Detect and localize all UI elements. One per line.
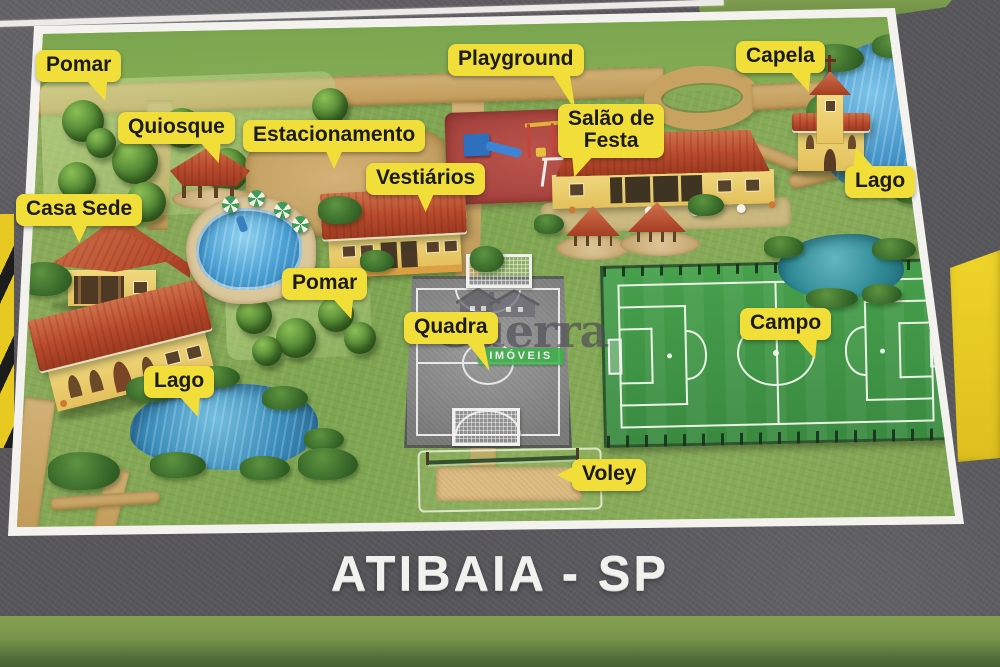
main-house-roof-fill [48,228,182,272]
lakeside-bush [934,128,976,164]
label-playground: Playground [448,44,584,76]
label-text: Quiosque [128,116,225,138]
label-text: Capela [746,45,815,67]
porch-post [78,276,81,304]
cross-icon [828,55,831,72]
label-text: Quadra [414,316,488,338]
lakeside-bush [304,428,344,450]
arched-window [87,369,104,393]
left-curb-striped [0,214,14,448]
window [343,246,356,257]
site-map-scene: Guerra IMÓVEIS Pomar Quiosque Estacionam… [0,0,1000,667]
court-goal-bottom [452,408,520,446]
lakeside-bush [150,452,206,478]
gazebo-small [628,202,686,246]
veranda-post [622,177,626,203]
window [165,351,180,365]
window [445,241,458,252]
label-text: Playground [458,48,574,70]
orchard-tree [252,336,282,366]
cross-icon [823,59,836,62]
label-text-line1: Salão de [568,108,654,130]
gazebo-roof [566,206,620,236]
bush [688,194,724,216]
bottom-grass-strip [0,616,1000,667]
label-estacionamento: Estacionamento [243,120,425,152]
label-salao-de-festa: Salão deFesta [558,104,664,158]
lakeside-bush [922,60,966,86]
label-text: Campo [750,312,821,334]
quiosque-gazebo [170,146,250,202]
play-post [527,124,531,158]
label-vestiarios: Vestiários [366,163,485,195]
lakeside-bush [262,386,308,410]
label-text-line2: Festa [568,130,654,152]
label-pomar-top: Pomar [36,50,121,82]
goal-box-right [898,321,933,378]
pond-bush [806,288,858,308]
label-text: Voley [582,463,636,485]
chapel-window [848,135,856,149]
veranda-post [678,176,682,202]
pool-umbrella [222,196,239,213]
window [186,346,201,360]
label-text: Lago [855,170,905,192]
bush [48,452,120,490]
bush [360,250,394,272]
arched-window [66,374,83,398]
page-title: ATIBAIA - SP [0,546,1000,602]
label-capela: Capela [736,41,825,73]
window [718,180,731,191]
label-text: Vestiários [376,167,475,189]
label-lago-top-right: Lago [845,166,915,198]
label-lago-bottom-left: Lago [144,366,214,398]
orchard-tree [86,128,116,158]
soccer-field [600,258,952,448]
label-text: Estacionamento [253,124,415,146]
label-voley: Voley [572,459,646,491]
bush [534,214,564,234]
pool-umbrella [248,190,265,207]
pond-bush [764,236,804,258]
bush [318,196,362,224]
goal-box-left [618,328,653,385]
label-pomar-mid: Pomar [282,268,367,300]
chapel-tower-roof [809,71,851,95]
volleyball-sand [436,467,582,501]
pond-bush [872,238,916,260]
window [570,184,583,195]
label-quiosque: Quiosque [118,112,235,144]
right-curb-yellow [948,248,1000,462]
flower-pot [59,399,67,407]
lakeside-bush [240,456,290,480]
label-text: Pomar [46,54,111,76]
orchard-tree [276,318,316,358]
orchard-tree [344,322,376,354]
orchard-tree [112,138,158,184]
label-casa-sede: Casa Sede [16,194,142,226]
tower-window [826,101,835,111]
label-text: Lago [154,370,204,392]
porch-post [98,276,101,304]
net-post [426,452,429,465]
window [746,180,759,191]
veranda-post [650,176,654,202]
watermark-tagline-badge: IMÓVEIS [478,348,564,365]
door-opening [400,241,417,268]
bush [470,246,504,272]
pool-umbrella [292,216,309,233]
penalty-spot-left [667,353,672,358]
bush [298,448,358,480]
penalty-spot-right [880,349,885,354]
pond-bush [862,284,902,304]
chapel-window [806,135,814,149]
gazebo-roof [628,202,686,232]
label-quadra: Quadra [404,312,498,344]
orchard-tree [312,88,348,124]
label-text: Casa Sede [26,198,132,220]
pool-umbrella [274,202,291,219]
window [427,242,440,253]
label-text: Pomar [292,272,357,294]
gazebo-small [566,206,620,250]
play-slide [485,141,522,158]
field-goal-left [608,338,623,374]
label-campo: Campo [740,308,831,340]
